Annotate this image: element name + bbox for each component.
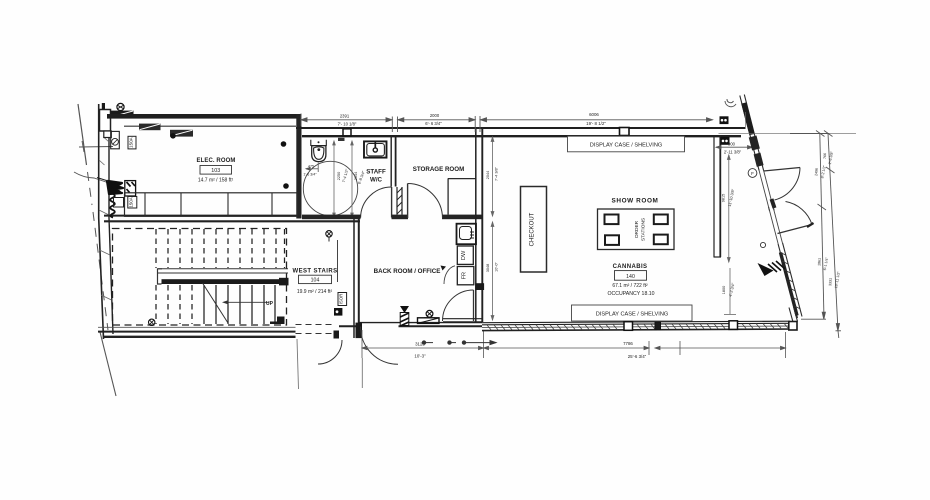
svg-text:1'-6 3/4": 1'-6 3/4" (303, 173, 317, 177)
svg-text:10'-0": 10'-0" (495, 262, 499, 272)
svg-text:3331: 3331 (828, 278, 832, 286)
svg-text:CANNABIS: CANNABIS (613, 264, 648, 270)
svg-text:103: 103 (211, 168, 220, 174)
svg-text:BACK ROOM / OFFICE: BACK ROOM / OFFICE (374, 268, 441, 275)
svg-text:19'- 8 1/2": 19'- 8 1/2" (586, 121, 606, 126)
svg-text:2250: 2250 (337, 172, 341, 180)
svg-text:766: 766 (823, 153, 827, 159)
svg-text:DISPLAY CASE / SHELVING: DISPLAY CASE / SHELVING (590, 142, 662, 148)
svg-text:F: F (751, 171, 754, 176)
svg-text:2000: 2000 (430, 113, 440, 118)
svg-text:W/C: W/C (370, 177, 383, 184)
svg-text:2044: 2044 (354, 172, 358, 180)
svg-text:14.7 m² / 158 ft²: 14.7 m² / 158 ft² (198, 178, 234, 184)
svg-text:SHOW ROOM: SHOW ROOM (612, 198, 659, 205)
svg-text:25'-6 3/4": 25'-6 3/4" (628, 354, 647, 359)
svg-text:ISOR: ISOR (339, 294, 344, 305)
svg-text:9815: 9815 (722, 194, 726, 202)
svg-text:1861: 1861 (817, 258, 821, 266)
svg-text:7'-4 3/8": 7'-4 3/8" (495, 166, 499, 181)
svg-text:DW: DW (461, 250, 467, 260)
svg-text:FR: FR (462, 272, 468, 279)
svg-text:STAFF: STAFF (366, 169, 386, 176)
svg-text:67.1 m² / 722 ft²: 67.1 m² / 722 ft² (612, 283, 648, 289)
svg-text:6'- 6 3/4": 6'- 6 3/4" (425, 121, 442, 126)
svg-text:WEST STAIRS: WEST STAIRS (293, 269, 338, 275)
svg-text:2'-11 3/8": 2'-11 3/8" (724, 150, 742, 155)
svg-text:10'-3": 10'-3" (414, 354, 426, 359)
svg-text:900: 900 (728, 141, 736, 146)
svg-text:7'- 10 1/8": 7'- 10 1/8" (338, 121, 357, 126)
svg-text:140: 140 (626, 274, 635, 280)
svg-text:6006: 6006 (589, 112, 599, 117)
svg-text:UP: UP (266, 301, 274, 307)
svg-text:2391: 2391 (340, 113, 350, 118)
svg-text:19.9 m² / 214 ft²: 19.9 m² / 214 ft² (297, 289, 333, 295)
svg-text:STORAGE ROOM: STORAGE ROOM (413, 166, 464, 173)
svg-text:2496: 2496 (814, 168, 818, 176)
svg-text:CHECKOUT: CHECKOUT (530, 212, 536, 246)
svg-text:3048: 3048 (486, 264, 490, 272)
svg-text:475: 475 (308, 164, 314, 168)
svg-text:STATIONS: STATIONS (641, 218, 647, 241)
svg-text:150A: 150A (128, 136, 133, 148)
svg-text:104: 104 (311, 278, 320, 284)
svg-text:1800: 1800 (722, 286, 726, 294)
svg-text:DISPLAY CASE / SHELVING: DISPLAY CASE / SHELVING (596, 312, 668, 318)
svg-text:ELEC. ROOM: ELEC. ROOM (196, 158, 235, 164)
svg-text:7786: 7786 (623, 341, 633, 346)
svg-text:OCCUPANCY 18.10: OCCUPANCY 18.10 (607, 291, 654, 297)
svg-text:150A: 150A (128, 197, 133, 207)
svg-text:2044: 2044 (486, 171, 490, 179)
svg-text:ORDER: ORDER (634, 220, 640, 238)
